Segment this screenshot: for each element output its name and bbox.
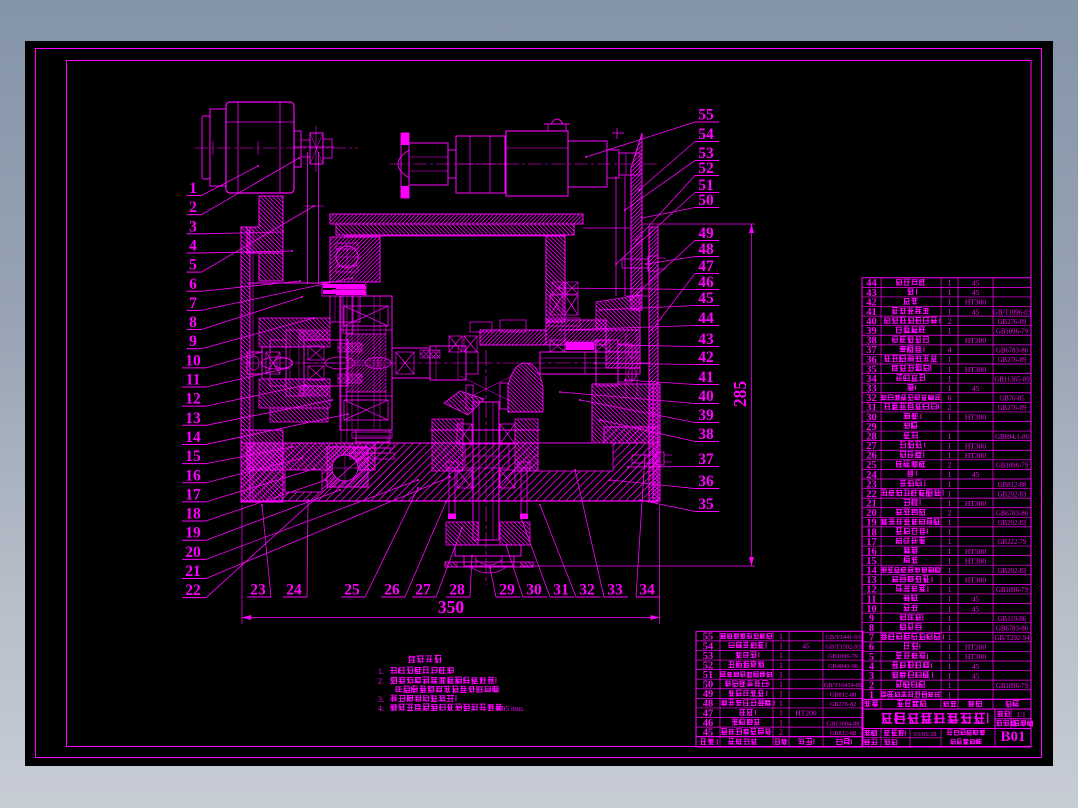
svg-text:1: 1 bbox=[948, 691, 952, 700]
svg-text:5: 5 bbox=[189, 257, 197, 274]
svg-text:24: 24 bbox=[286, 582, 302, 599]
svg-text:2: 2 bbox=[779, 728, 783, 737]
svg-text:1: 1 bbox=[948, 585, 952, 594]
svg-text:GB/T1592-93: GB/T1592-93 bbox=[825, 644, 860, 651]
svg-text:GB/T1441-93: GB/T1441-93 bbox=[825, 634, 860, 641]
svg-text:1: 1 bbox=[779, 642, 783, 651]
svg-text:29: 29 bbox=[499, 582, 515, 599]
svg-text:42: 42 bbox=[698, 349, 714, 366]
svg-text:GB292-83: GB292-83 bbox=[998, 520, 1027, 527]
svg-text:25: 25 bbox=[344, 582, 360, 599]
svg-text:1.: 1. bbox=[378, 667, 384, 676]
svg-text:45: 45 bbox=[972, 470, 980, 479]
svg-text:0.05 mm.: 0.05 mm. bbox=[496, 704, 525, 713]
svg-text:1: 1 bbox=[948, 671, 952, 680]
svg-text:B01: B01 bbox=[1000, 729, 1025, 745]
svg-text:1: 1 bbox=[948, 681, 952, 690]
svg-text:45: 45 bbox=[972, 307, 980, 316]
svg-text:1: 1 bbox=[948, 355, 952, 364]
svg-text:1: 1 bbox=[948, 365, 952, 374]
svg-text:GB1096-79: GB1096-79 bbox=[828, 653, 858, 660]
svg-text:49: 49 bbox=[698, 225, 714, 242]
svg-text:41: 41 bbox=[698, 369, 714, 386]
svg-text:22: 22 bbox=[185, 582, 201, 599]
svg-text:45: 45 bbox=[972, 662, 980, 671]
svg-text:1: 1 bbox=[948, 547, 952, 556]
svg-text:32: 32 bbox=[579, 582, 595, 599]
svg-text:38: 38 bbox=[698, 426, 714, 443]
svg-text:HT300: HT300 bbox=[965, 365, 986, 374]
svg-text:4.: 4. bbox=[378, 704, 384, 713]
svg-text:2: 2 bbox=[948, 317, 952, 326]
svg-text:GB6783-86: GB6783-86 bbox=[996, 625, 1029, 632]
svg-text:47: 47 bbox=[698, 258, 714, 275]
svg-text:54: 54 bbox=[698, 126, 714, 143]
svg-text:GB/T292-94: GB/T292-94 bbox=[995, 635, 1030, 642]
svg-text:18: 18 bbox=[185, 506, 201, 523]
svg-text:4: 4 bbox=[948, 346, 952, 355]
svg-text:GB1096-79: GB1096-79 bbox=[996, 587, 1029, 594]
svg-text:45: 45 bbox=[972, 671, 980, 680]
svg-text:1: 1 bbox=[948, 633, 952, 642]
svg-text:GB119-86: GB119-86 bbox=[998, 616, 1027, 623]
svg-text:48: 48 bbox=[698, 241, 714, 258]
svg-text:6: 6 bbox=[948, 394, 952, 403]
svg-text:GB812-88: GB812-88 bbox=[830, 730, 857, 737]
svg-text:GB276-89: GB276-89 bbox=[998, 357, 1027, 364]
svg-text:GB6783-86: GB6783-86 bbox=[996, 511, 1029, 518]
svg-text:45: 45 bbox=[698, 290, 714, 307]
svg-text:15: 15 bbox=[185, 448, 201, 465]
svg-text:1: 1 bbox=[779, 651, 783, 660]
svg-text:GB/T1096-03: GB/T1096-03 bbox=[993, 309, 1032, 316]
svg-text:1: 1 bbox=[948, 537, 952, 546]
svg-text:3: 3 bbox=[189, 218, 197, 235]
svg-text:2: 2 bbox=[948, 461, 952, 470]
svg-text:1: 1 bbox=[948, 288, 952, 297]
svg-text:1: 1 bbox=[948, 480, 952, 489]
svg-text:1: 1 bbox=[948, 662, 952, 671]
svg-text:45: 45 bbox=[972, 604, 980, 613]
svg-text:14: 14 bbox=[185, 429, 201, 446]
svg-text:45: 45 bbox=[972, 279, 980, 288]
svg-text:45: 45 bbox=[972, 595, 980, 604]
svg-text:285: 285 bbox=[730, 381, 750, 408]
svg-text:21: 21 bbox=[185, 563, 201, 580]
svg-text:1: 1 bbox=[948, 518, 952, 527]
svg-text:GB222-79: GB222-79 bbox=[998, 539, 1027, 546]
svg-text:2: 2 bbox=[189, 199, 197, 216]
svg-text:19: 19 bbox=[185, 525, 201, 542]
svg-text:2.: 2. bbox=[378, 677, 384, 686]
svg-text:1: 1 bbox=[948, 384, 952, 393]
svg-text:1: 1 bbox=[948, 413, 952, 422]
svg-text:2: 2 bbox=[948, 509, 952, 518]
svg-text:HT300: HT300 bbox=[965, 451, 986, 460]
svg-text:16: 16 bbox=[185, 467, 201, 484]
svg-text:6: 6 bbox=[189, 276, 197, 293]
svg-text:36: 36 bbox=[698, 473, 714, 490]
svg-text:53: 53 bbox=[698, 145, 714, 162]
svg-text:1: 1 bbox=[948, 652, 952, 661]
svg-text:1: 1 bbox=[948, 298, 952, 307]
svg-text:1: 1 bbox=[948, 614, 952, 623]
svg-text:1: 1 bbox=[948, 499, 952, 508]
svg-text:1: 1 bbox=[779, 670, 783, 679]
svg-text:03/05/28: 03/05/28 bbox=[913, 731, 936, 738]
svg-text:44: 44 bbox=[698, 310, 714, 327]
svg-text:HT300: HT300 bbox=[965, 556, 986, 565]
svg-text:1: 1 bbox=[189, 180, 197, 197]
svg-text:1: 1 bbox=[948, 566, 952, 575]
svg-text:17: 17 bbox=[185, 486, 201, 503]
svg-text:50: 50 bbox=[698, 192, 714, 209]
svg-text:1: 1 bbox=[948, 451, 952, 460]
svg-text:2: 2 bbox=[948, 403, 952, 412]
svg-text:40: 40 bbox=[698, 388, 714, 405]
svg-text:1: 1 bbox=[948, 528, 952, 537]
svg-text:30: 30 bbox=[526, 582, 542, 599]
svg-text:HT300: HT300 bbox=[965, 298, 986, 307]
svg-text:GB276-89: GB276-89 bbox=[998, 405, 1027, 412]
svg-text:20: 20 bbox=[185, 544, 201, 561]
svg-text:GB70-85: GB70-85 bbox=[999, 396, 1025, 403]
svg-text:HT300: HT300 bbox=[965, 576, 986, 585]
svg-text:11: 11 bbox=[186, 372, 201, 389]
svg-text:GB812-88: GB812-88 bbox=[998, 482, 1027, 489]
svg-text:1: 1 bbox=[779, 699, 783, 708]
svg-text:1: 1 bbox=[948, 374, 952, 383]
svg-text:46: 46 bbox=[698, 274, 714, 291]
svg-text:1: 1 bbox=[779, 680, 783, 689]
svg-text:1:1: 1:1 bbox=[1016, 710, 1026, 719]
svg-text:31: 31 bbox=[553, 582, 569, 599]
svg-text:55: 55 bbox=[698, 107, 714, 124]
svg-text:HT200: HT200 bbox=[965, 643, 986, 652]
svg-text:1: 1 bbox=[948, 470, 952, 479]
svg-text:7: 7 bbox=[189, 295, 197, 312]
svg-text:1: 1 bbox=[779, 661, 783, 670]
svg-text:1: 1 bbox=[948, 489, 952, 498]
svg-text:1: 1 bbox=[779, 690, 783, 699]
svg-text:GB6783-86: GB6783-86 bbox=[996, 348, 1029, 355]
svg-text:HT200: HT200 bbox=[965, 336, 986, 345]
svg-text:39: 39 bbox=[698, 407, 714, 424]
svg-text:1: 1 bbox=[779, 632, 783, 641]
svg-text:1: 1 bbox=[948, 279, 952, 288]
svg-text:34: 34 bbox=[639, 582, 655, 599]
svg-text:45: 45 bbox=[802, 642, 810, 651]
svg-text:GB1096-79: GB1096-79 bbox=[996, 328, 1029, 335]
svg-text:GB13004-88: GB13004-88 bbox=[827, 720, 860, 727]
svg-text:1: 1 bbox=[779, 718, 783, 727]
svg-text:28: 28 bbox=[449, 582, 465, 599]
svg-text:GB1096-79: GB1096-79 bbox=[996, 463, 1029, 470]
svg-text:37: 37 bbox=[698, 451, 714, 468]
svg-text:35: 35 bbox=[698, 496, 714, 513]
svg-text:4: 4 bbox=[189, 237, 197, 254]
svg-text:GB4843-96: GB4843-96 bbox=[828, 663, 858, 670]
svg-text:GB292-83: GB292-83 bbox=[998, 491, 1027, 498]
svg-text:1: 1 bbox=[948, 623, 952, 632]
svg-text:GB812-88: GB812-88 bbox=[830, 692, 857, 699]
svg-text:GB11365-89: GB11365-89 bbox=[994, 376, 1030, 383]
svg-text:HT300: HT300 bbox=[965, 652, 986, 661]
svg-text:1: 1 bbox=[948, 307, 952, 316]
svg-text:12: 12 bbox=[185, 391, 201, 408]
svg-text:43: 43 bbox=[698, 331, 714, 348]
svg-text:1: 1 bbox=[948, 326, 952, 335]
svg-text:1: 1 bbox=[948, 643, 952, 652]
svg-text:45: 45 bbox=[972, 288, 980, 297]
svg-text:1: 1 bbox=[948, 595, 952, 604]
svg-text:1: 1 bbox=[948, 604, 952, 613]
svg-text:3.: 3. bbox=[378, 695, 384, 704]
svg-text:GB/T10414-89: GB/T10414-89 bbox=[824, 682, 862, 689]
svg-text:1: 1 bbox=[948, 576, 952, 585]
svg-text:GB292-83: GB292-83 bbox=[998, 568, 1027, 575]
svg-text:26: 26 bbox=[384, 582, 400, 599]
svg-text:GB276-82: GB276-82 bbox=[830, 701, 857, 708]
svg-text:33: 33 bbox=[607, 582, 623, 599]
svg-text:GB1096-79: GB1096-79 bbox=[996, 683, 1029, 690]
svg-text:1: 1 bbox=[948, 556, 952, 565]
svg-text:1: 1 bbox=[948, 441, 952, 450]
svg-text:10: 10 bbox=[185, 352, 201, 369]
svg-text:52: 52 bbox=[698, 160, 714, 177]
svg-text:1: 1 bbox=[948, 432, 952, 441]
svg-text:HT500: HT500 bbox=[965, 547, 986, 556]
svg-text:HT300: HT300 bbox=[965, 441, 986, 450]
svg-text:GB894.1-86: GB894.1-86 bbox=[995, 434, 1029, 441]
svg-text:45: 45 bbox=[972, 384, 980, 393]
svg-text:GB276-89: GB276-89 bbox=[998, 319, 1027, 326]
svg-text:350: 350 bbox=[438, 597, 465, 617]
svg-text:HT300: HT300 bbox=[965, 499, 986, 508]
svg-text:HT300: HT300 bbox=[965, 413, 986, 422]
svg-text:27: 27 bbox=[415, 582, 431, 599]
svg-text:23: 23 bbox=[250, 582, 266, 599]
svg-text:51: 51 bbox=[698, 177, 714, 194]
svg-text:1: 1 bbox=[779, 709, 783, 718]
svg-text:9: 9 bbox=[189, 333, 197, 350]
svg-text:13: 13 bbox=[185, 410, 201, 427]
svg-text:8: 8 bbox=[189, 314, 197, 331]
svg-text:HT200: HT200 bbox=[795, 709, 816, 718]
